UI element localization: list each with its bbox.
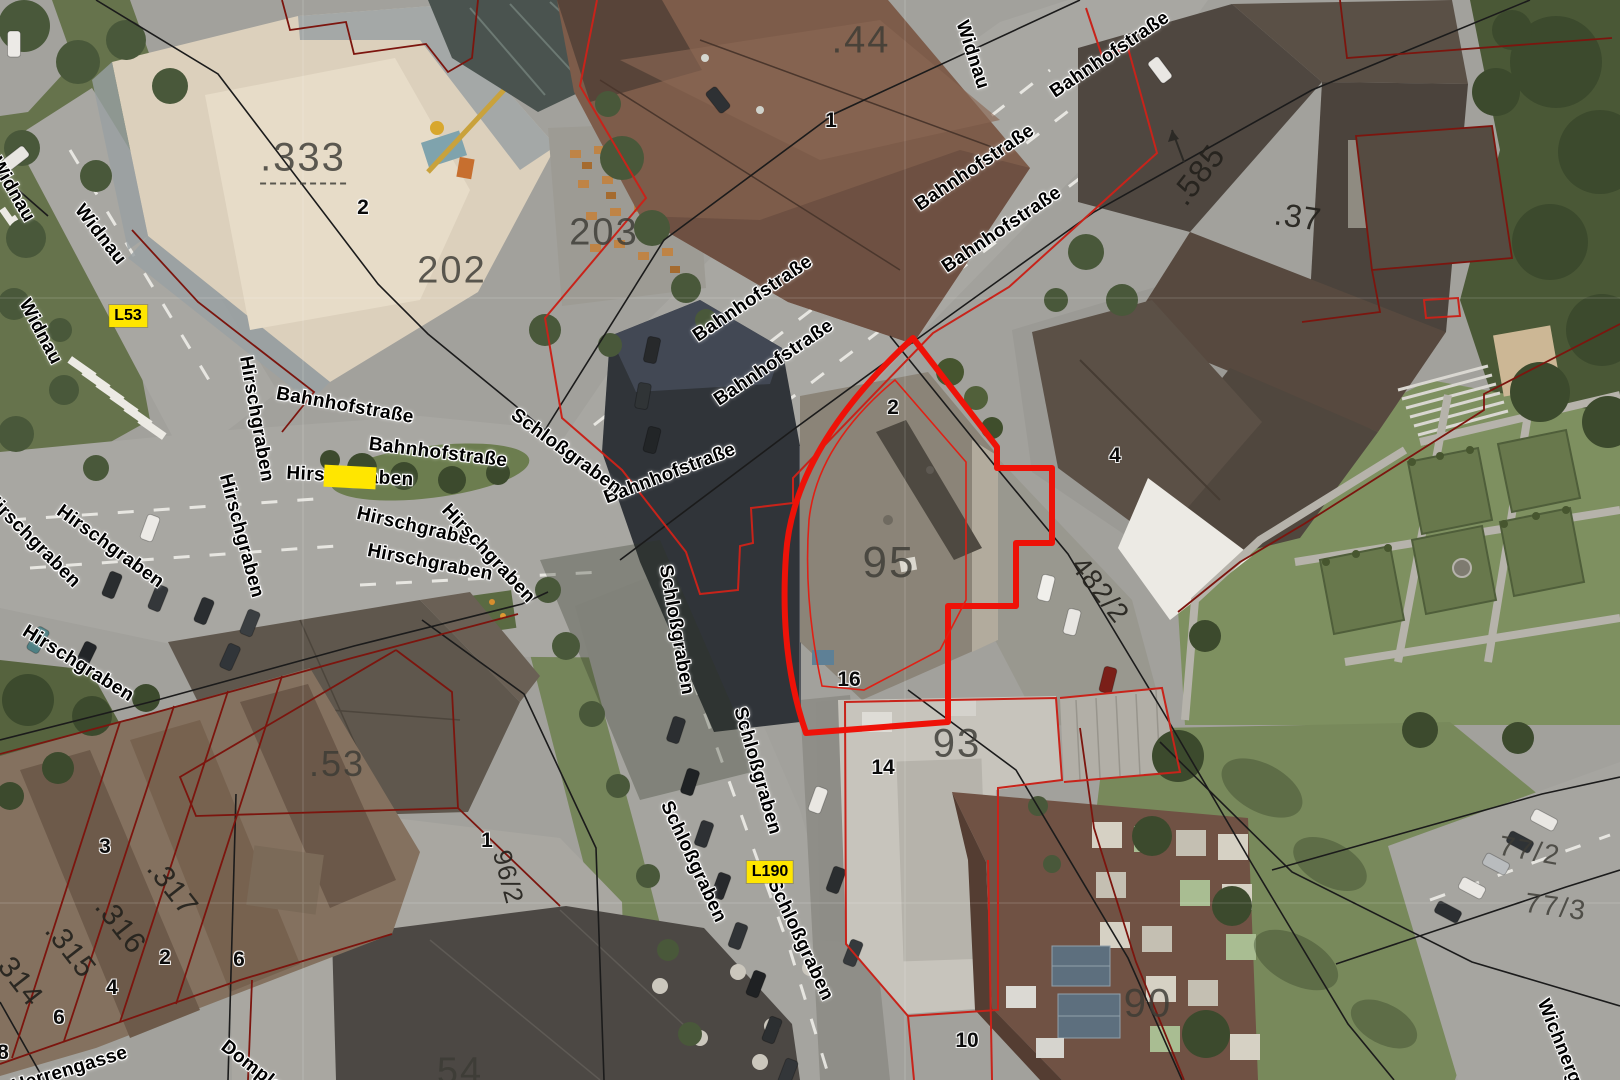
map-viewport[interactable]: WidnauWidnauWidnauWidnauBahnhofstraßeBah… <box>0 0 1620 1080</box>
aerial-imagery <box>0 0 1620 1080</box>
